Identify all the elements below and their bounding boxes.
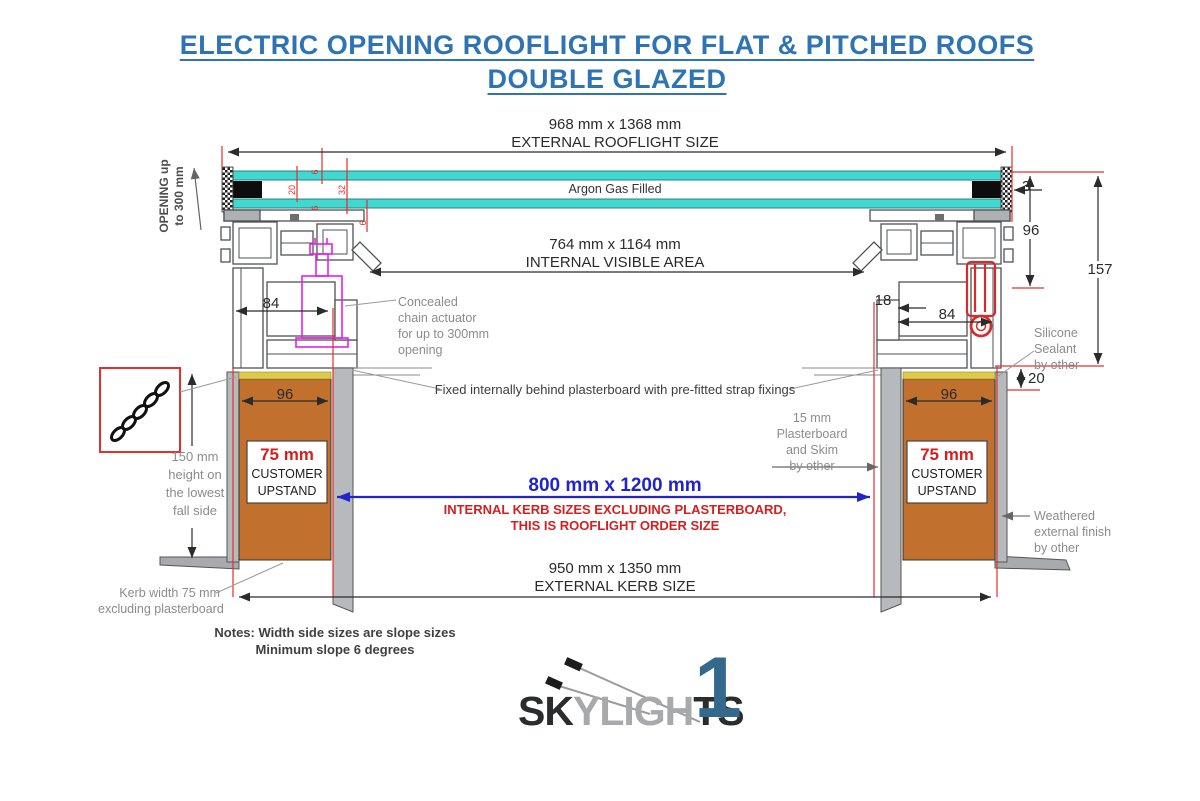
dim-edge-3: 3 — [1022, 178, 1030, 195]
order-note-2: THIS IS ROOFLIGHT ORDER SIZE — [240, 518, 990, 534]
argon-label: Argon Gas Filled — [240, 182, 990, 196]
dim-overall-157: 157 — [1082, 261, 1118, 278]
internal-visible-size: 764 mm x 1164 mm — [240, 236, 990, 253]
frame-profile-right — [853, 210, 1013, 368]
notes: Notes: Width side sizes are slope sizes … — [210, 624, 460, 658]
external-rooflight-size: 968 mm x 1368 mm — [240, 116, 990, 133]
kerb-width-note: Kerb width 75 mm excluding plasterboard — [98, 585, 220, 617]
fall-height-note: 150 mm height on the lowest fall side — [147, 448, 243, 520]
ceiling-lines — [353, 368, 881, 375]
logo-numeral: 1 — [694, 652, 742, 725]
page-subtitle: DOUBLE GLAZED — [14, 64, 1200, 95]
page-title: ELECTRIC OPENING ROOFLIGHT FOR FLAT & PI… — [14, 30, 1200, 61]
fixed-note: Fixed internally behind plasterboard wit… — [240, 382, 990, 397]
opening-note: OPENING up to 300 mm — [157, 136, 187, 256]
dim-frame-right-18: 18 — [870, 292, 896, 309]
dim-frame-right-84: 84 — [932, 306, 962, 323]
dim-glass-outer: 6 — [310, 164, 320, 180]
sealant-strip-left — [239, 372, 331, 379]
chain-icon — [109, 380, 171, 443]
dim-frame-height-96: 96 — [1016, 222, 1046, 239]
weathered-note: Weathered external finish by other — [1034, 508, 1111, 556]
order-size: 800 mm x 1200 mm — [240, 475, 990, 497]
sealant-strip-right — [903, 372, 995, 379]
dim-glass-edge: 6 — [358, 215, 368, 231]
order-note-1: INTERNAL KERB SIZES EXCLUDING PLASTERBOA… — [240, 502, 990, 518]
actuator-note: Concealed chain actuator for up to 300mm… — [398, 294, 489, 358]
edge-hatch-left — [222, 167, 233, 212]
dim-glass-unit: 32 — [337, 182, 347, 198]
silicone-note: Silicone Sealant by other — [1034, 325, 1079, 373]
external-rooflight-label: EXTERNAL ROOFLIGHT SIZE — [240, 134, 990, 151]
plasterboard-note: 15 mm Plasterboard and Skim by other — [762, 410, 862, 474]
frame-profile — [221, 210, 381, 368]
external-kerb-size: 950 mm x 1350 mm — [240, 560, 990, 577]
external-kerb-label: EXTERNAL KERB SIZE — [240, 578, 990, 595]
dim-glass-inner: 6 — [310, 200, 320, 216]
edge-hatch-right — [1001, 167, 1012, 212]
internal-visible-label: INTERNAL VISIBLE AREA — [240, 254, 990, 271]
drawing-sheet: ELECTRIC OPENING ROOFLIGHT FOR FLAT & PI… — [0, 0, 1200, 801]
dim-glass-cavity: 20 — [287, 182, 297, 198]
dim-frame-left-84: 84 — [256, 295, 286, 312]
